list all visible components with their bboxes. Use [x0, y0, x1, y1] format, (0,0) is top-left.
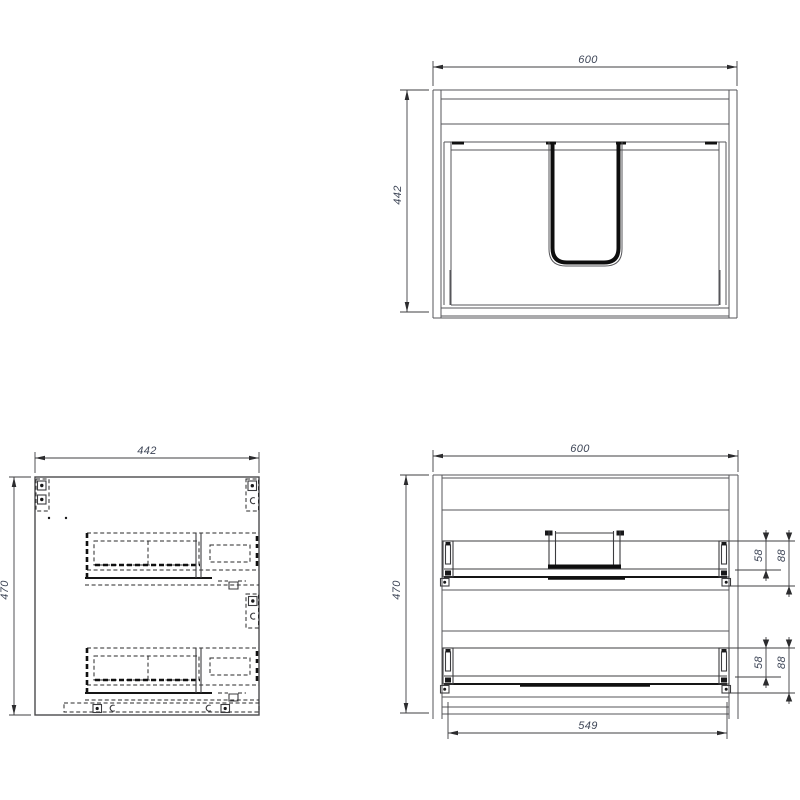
internal-height-label: 470 — [391, 580, 403, 600]
extension-lines — [9, 477, 31, 715]
dim-opening-width: 549 — [448, 702, 727, 739]
drawer-back-detail — [196, 533, 238, 701]
front-view-carcass-outline — [433, 90, 737, 318]
dimension-lines — [766, 530, 789, 597]
screw-hole-icon — [38, 481, 47, 490]
hidden-detail-lines — [36, 479, 259, 712]
rail-clip-right — [719, 648, 729, 684]
cam-lock-icon — [206, 705, 211, 711]
screw-hole-icon — [248, 481, 257, 491]
cam-lock-icon — [110, 705, 115, 711]
rail-clip-left — [443, 648, 453, 684]
sink-cutout-outline — [549, 142, 622, 266]
dim-internal-width: 600 — [433, 443, 738, 472]
rail-offset-small-label: 58 — [753, 656, 765, 670]
dim-internal-height: 470 — [391, 475, 429, 713]
rail-clip-right — [719, 541, 729, 577]
front-view: 600 442 — [392, 54, 737, 318]
opening-width-label: 549 — [578, 720, 598, 732]
extension-lines — [400, 90, 429, 312]
rail-offset-large-label: 88 — [776, 549, 788, 563]
drawer-slide-solid-lines — [85, 578, 212, 693]
arrowheads — [763, 640, 792, 702]
dim-side-height: 470 — [0, 477, 31, 715]
extension-lines — [400, 475, 429, 713]
cam-lock-icon — [250, 498, 255, 504]
rail-offset-small-label: 58 — [753, 549, 765, 563]
carcass-outline — [433, 475, 738, 719]
internal-width-label: 600 — [570, 443, 590, 455]
rail-offset-large-label: 88 — [776, 656, 788, 670]
dowel-mark — [48, 517, 50, 519]
drawer-slide-hidden-thick — [87, 533, 257, 693]
rail-lines — [444, 648, 727, 676]
side-width-label: 442 — [137, 445, 157, 457]
side-height-label: 470 — [0, 580, 11, 600]
upper-drawer-rail — [441, 531, 731, 587]
cam-lock-icon — [251, 613, 256, 619]
side-view: 442 470 — [0, 445, 259, 715]
technical-drawing: 600 442 442 — [0, 0, 800, 800]
rail-lines — [444, 533, 727, 569]
front-width-label: 600 — [578, 54, 598, 66]
arrowheads — [763, 533, 792, 595]
screw-hole-icon — [38, 495, 47, 504]
dim-front-height: 442 — [392, 90, 429, 312]
screw-hole-icon — [221, 705, 230, 713]
center-bracket — [545, 531, 624, 567]
dowel-mark — [65, 517, 67, 519]
dim-front-width: 600 — [433, 54, 737, 86]
screw-hole-icon — [93, 705, 102, 713]
lower-drawer-rail — [441, 648, 731, 693]
screw-hole-icon — [249, 597, 258, 606]
rail-clip-left — [443, 541, 453, 577]
internal-front-view: 600 470 549 58 88 58 88 — [391, 443, 795, 739]
sink-cutout — [553, 142, 619, 263]
dim-side-width: 442 — [35, 445, 259, 473]
drawing-canvas: 600 442 442 — [0, 0, 800, 800]
dimension-lines — [766, 637, 789, 704]
front-height-label: 442 — [392, 185, 404, 205]
